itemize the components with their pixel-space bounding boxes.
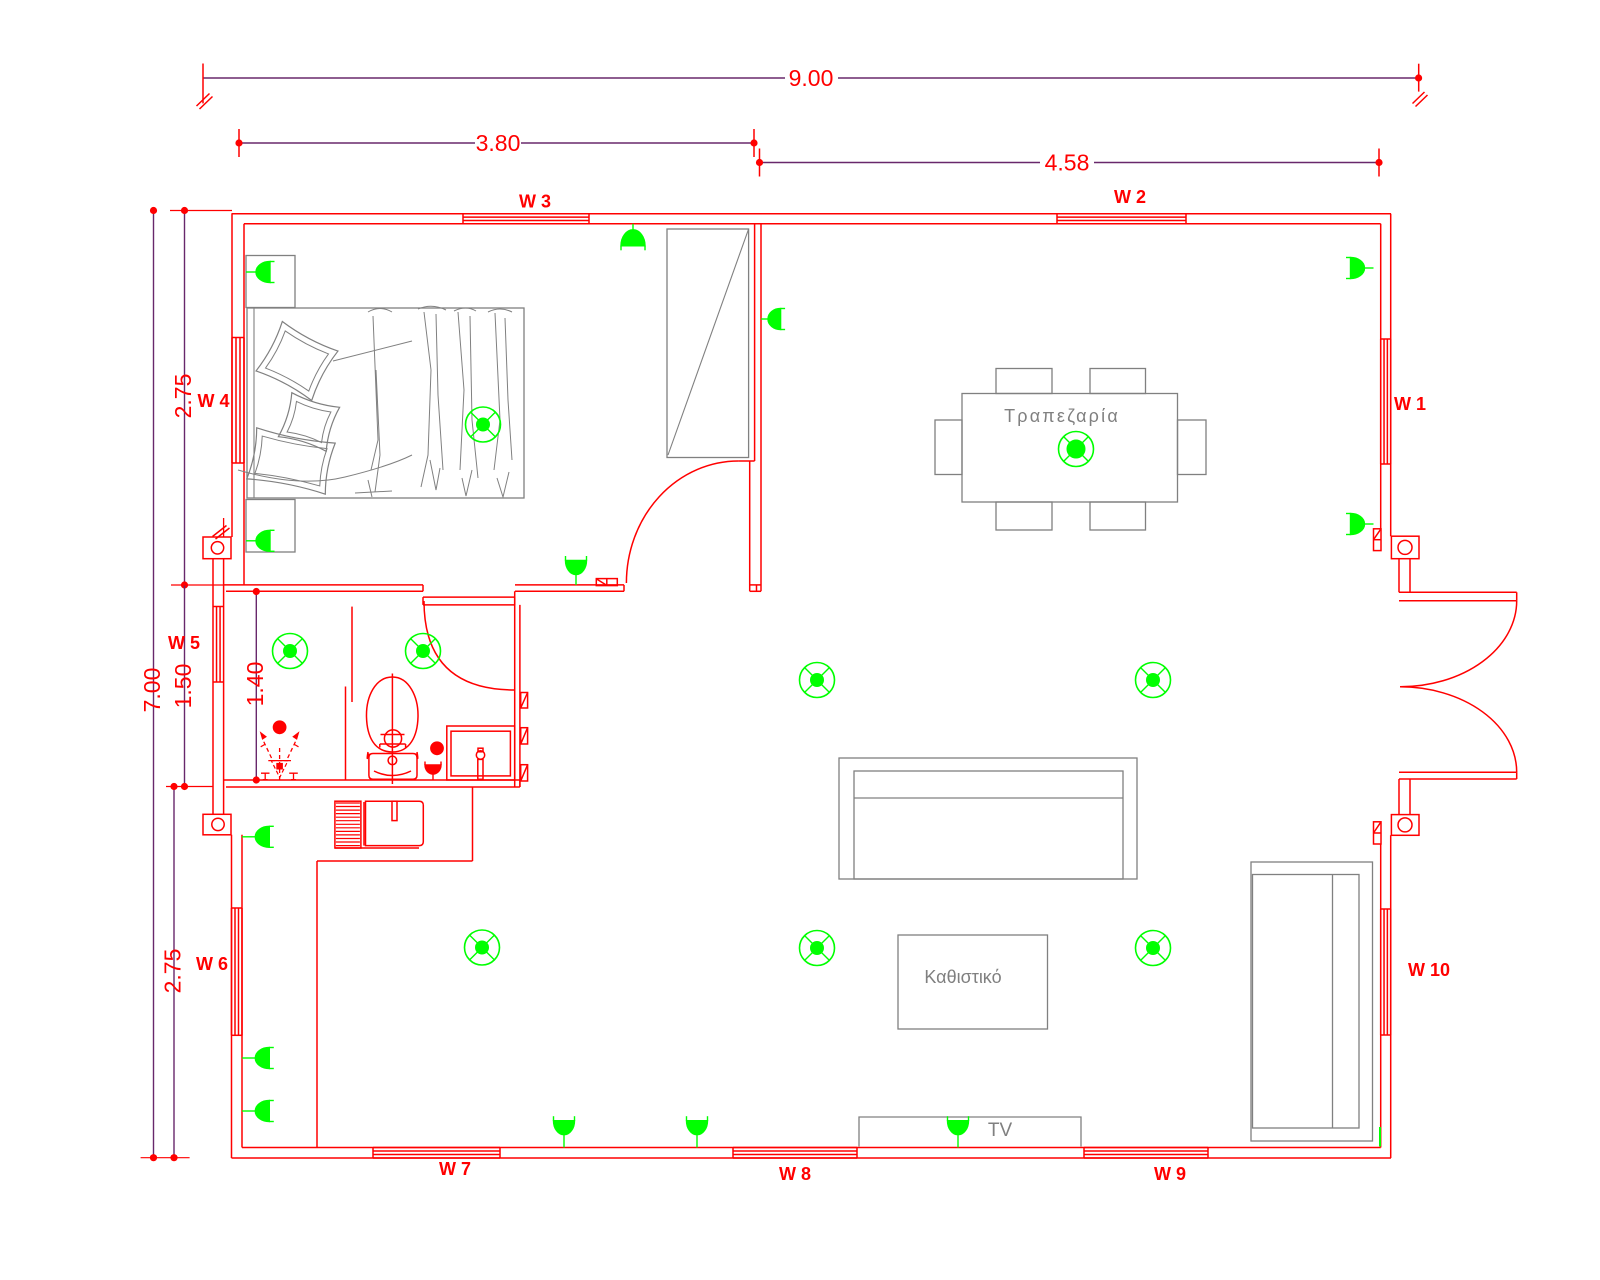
svg-text:TV: TV bbox=[988, 1120, 1013, 1141]
svg-text:W 6: W 6 bbox=[196, 954, 228, 974]
svg-text:W 1: W 1 bbox=[1394, 394, 1426, 414]
svg-text:W 3: W 3 bbox=[519, 192, 551, 212]
svg-text:4.58: 4.58 bbox=[1045, 150, 1090, 176]
svg-text:1.40: 1.40 bbox=[242, 662, 268, 707]
svg-text:Τραπεζαρία: Τραπεζαρία bbox=[1004, 406, 1120, 426]
svg-text:2.75: 2.75 bbox=[170, 374, 196, 419]
svg-text:7.00: 7.00 bbox=[139, 668, 165, 713]
svg-text:W 2: W 2 bbox=[1114, 187, 1146, 207]
svg-text:W 8: W 8 bbox=[779, 1164, 811, 1184]
svg-text:W 5: W 5 bbox=[168, 633, 200, 653]
svg-text:9.00: 9.00 bbox=[789, 65, 834, 91]
svg-text:W 9: W 9 bbox=[1154, 1164, 1186, 1184]
svg-text:W 7: W 7 bbox=[439, 1159, 471, 1179]
svg-text:1.50: 1.50 bbox=[170, 664, 196, 709]
svg-text:W 4: W 4 bbox=[197, 391, 229, 411]
svg-text:2.75: 2.75 bbox=[160, 949, 186, 994]
svg-text:3.80: 3.80 bbox=[476, 130, 521, 156]
svg-text:Καθιστικό: Καθιστικό bbox=[924, 967, 1001, 987]
svg-text:W 10: W 10 bbox=[1408, 960, 1450, 980]
